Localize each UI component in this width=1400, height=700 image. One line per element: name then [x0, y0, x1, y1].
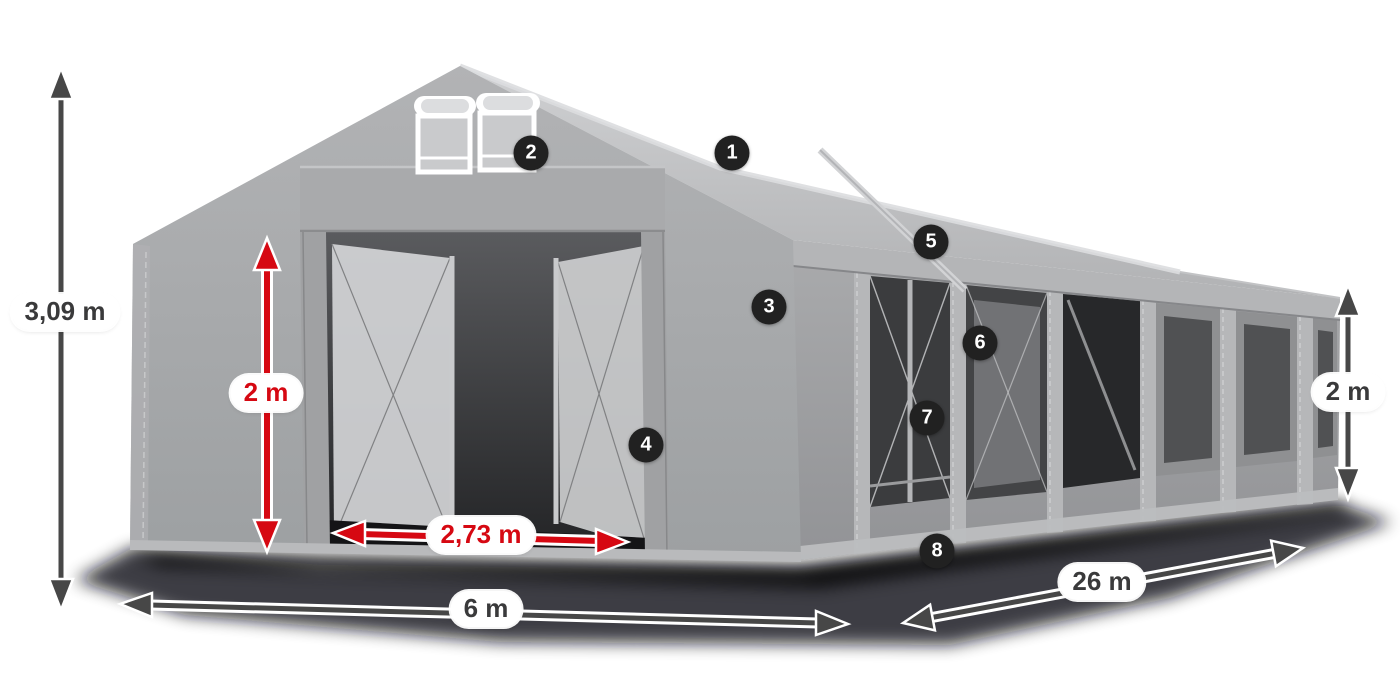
entrance-beam	[300, 166, 665, 232]
dimension-label-total-height: 3,09 m	[12, 294, 119, 330]
feature-marker-7[interactable]: 7	[910, 401, 945, 436]
tent-diagram: 3,09 m 2 m 2,73 m 6 m 26 m 2 m 1 2 3 4 5…	[0, 0, 1400, 700]
feature-marker-4[interactable]: 4	[629, 428, 664, 463]
feature-marker-5[interactable]: 5	[914, 225, 949, 260]
dimension-label-entrance-height: 2 m	[231, 375, 302, 411]
dimension-label-width: 6 m	[451, 591, 522, 627]
feature-marker-3[interactable]: 3	[752, 290, 787, 325]
dimension-label-entrance-width: 2,73 m	[428, 517, 535, 553]
feature-marker-1[interactable]: 1	[715, 136, 750, 171]
tent-illustration	[0, 0, 1400, 700]
feature-marker-6[interactable]: 6	[963, 326, 998, 361]
vent-window-left	[414, 96, 476, 172]
dimension-label-length: 26 m	[1059, 564, 1144, 600]
right-door-panel	[558, 246, 647, 548]
feature-marker-2[interactable]: 2	[514, 136, 549, 171]
tent-front-gable	[130, 66, 801, 562]
dimension-label-side-height: 2 m	[1313, 374, 1384, 410]
feature-marker-8[interactable]: 8	[920, 534, 955, 569]
arrow-total-height	[49, 68, 73, 610]
